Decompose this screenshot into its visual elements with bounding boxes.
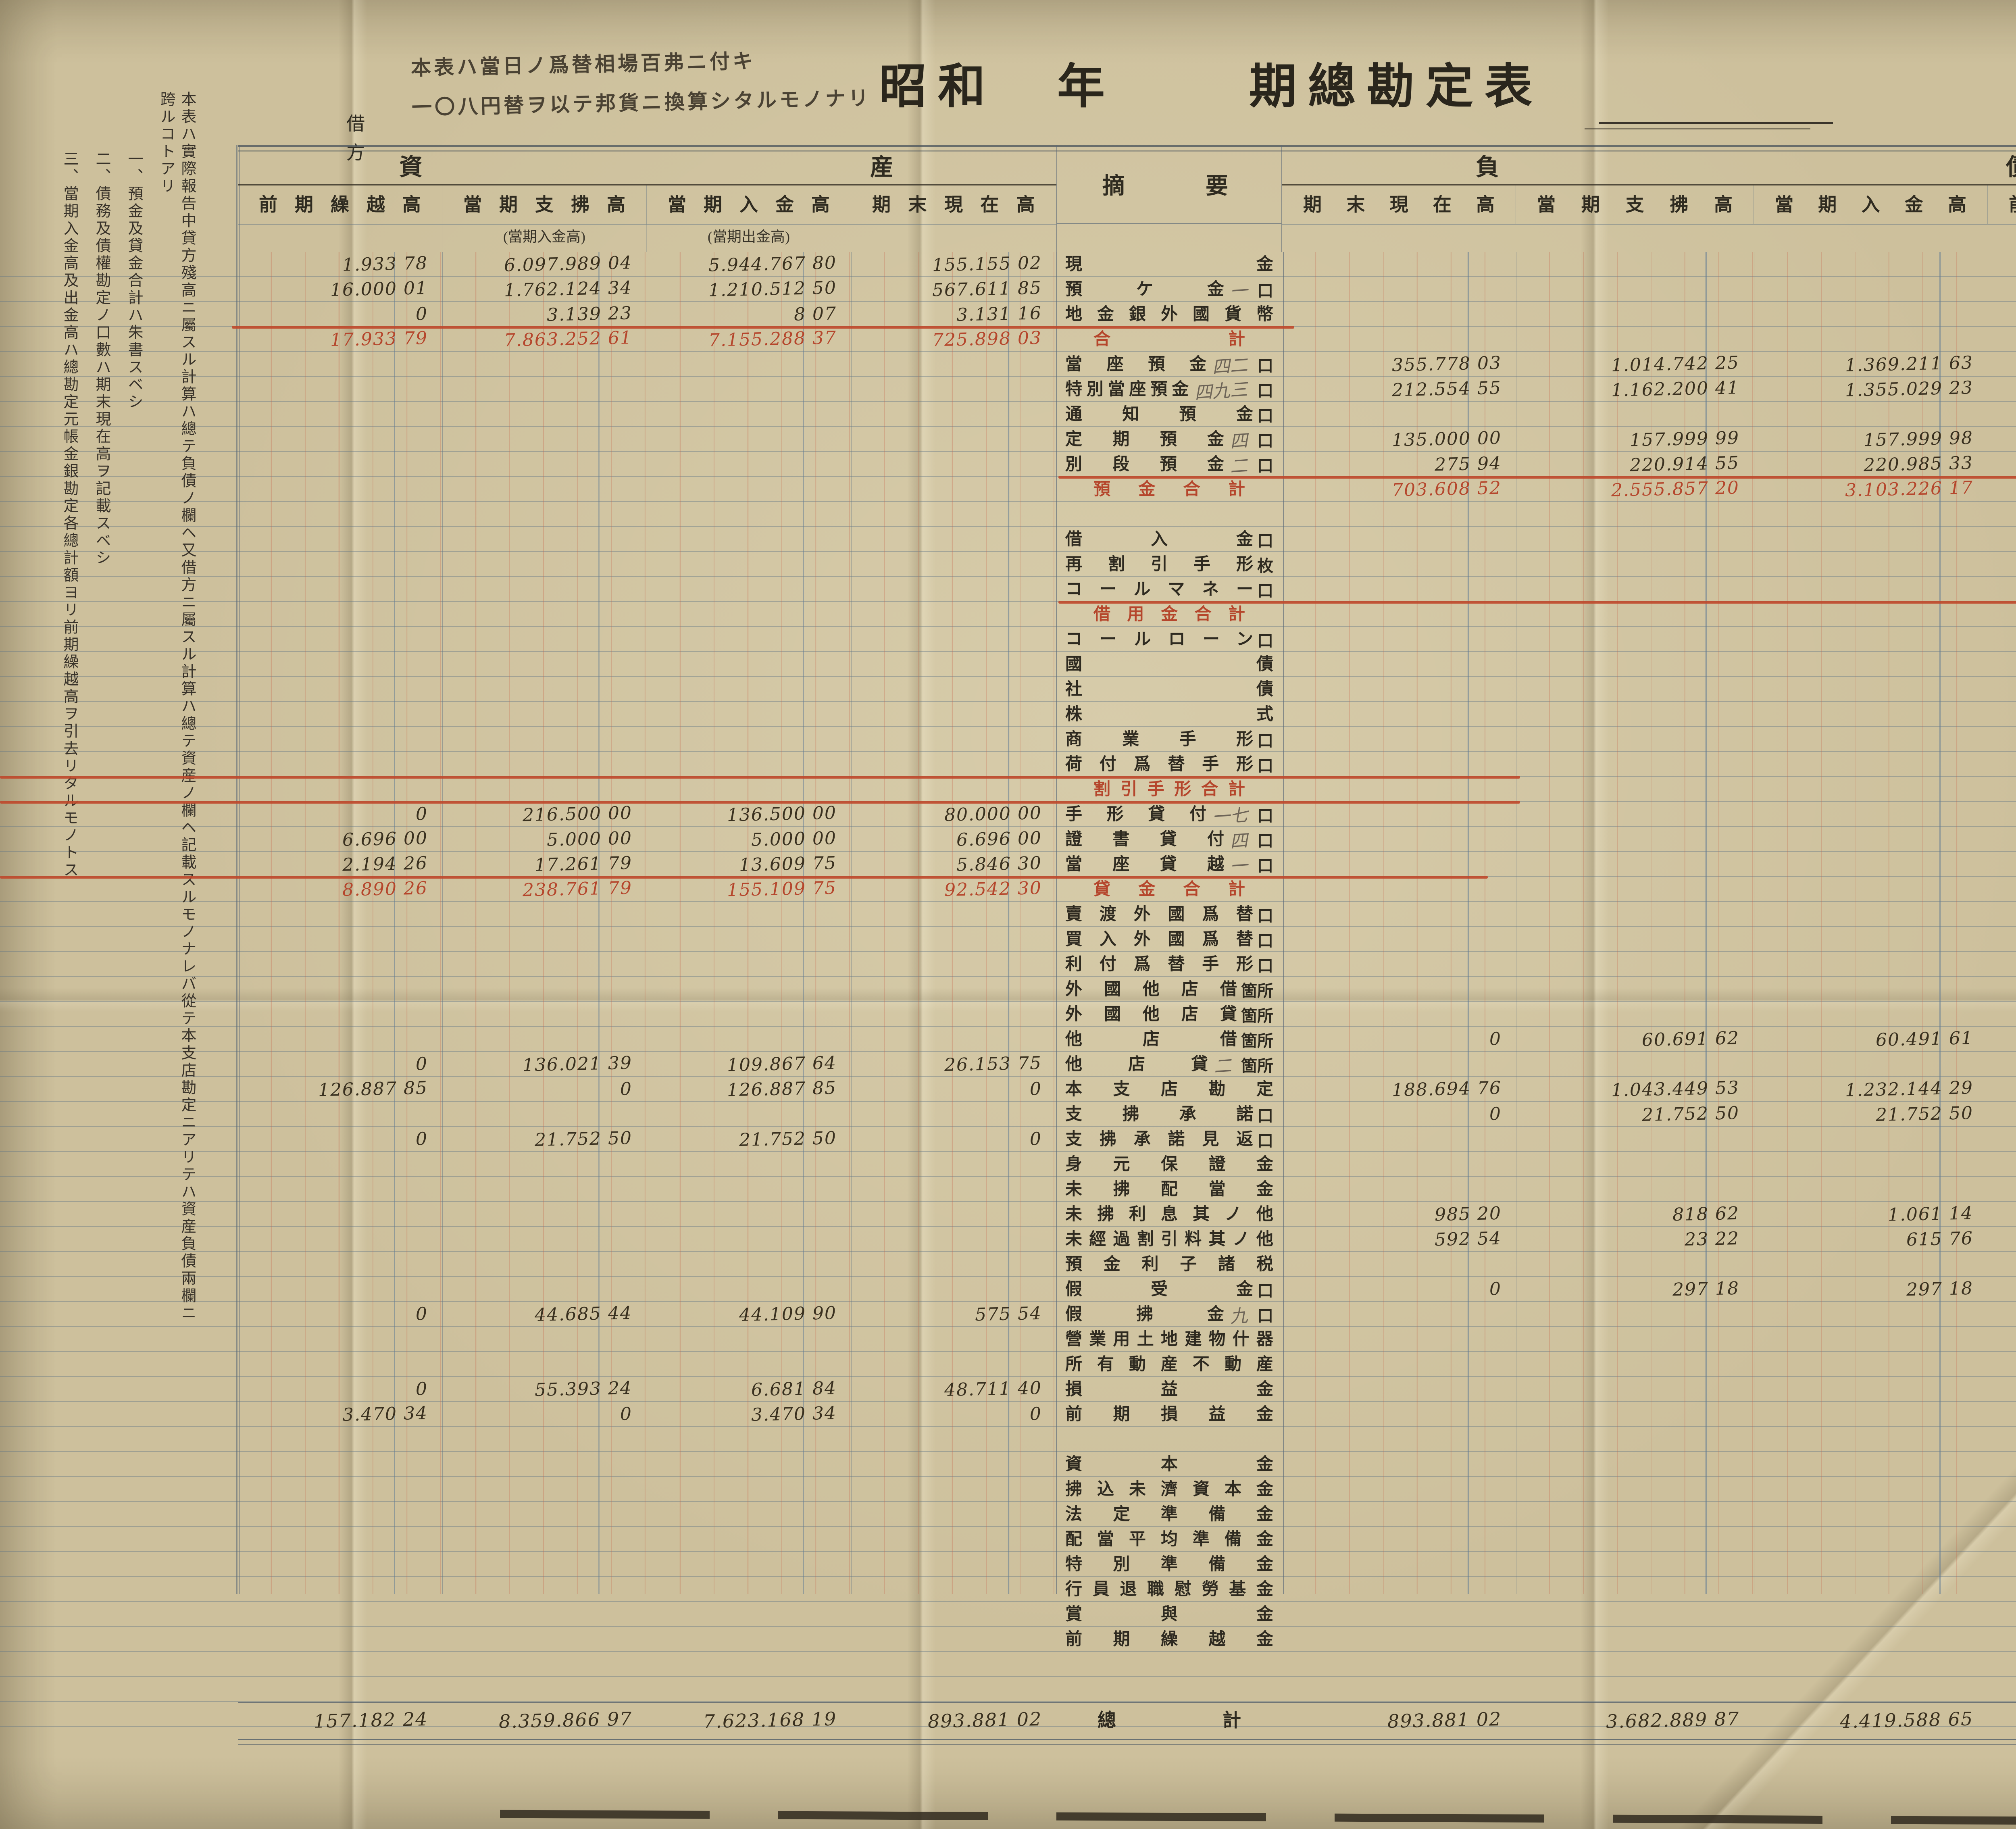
account-label: 別段預金: [1065, 452, 1224, 477]
liability-amount-cell: [1516, 1652, 1754, 1702]
liability-amount-cell: 200 01: [1988, 1027, 2016, 1052]
liability-amount-cell: [1988, 1127, 2016, 1152]
asset-amount-cell: 0: [851, 1077, 1056, 1102]
asset-amount-cell: [238, 1202, 442, 1227]
asset-amount-cell: [851, 1352, 1056, 1377]
liability-amount-cell: [1516, 977, 1754, 1002]
asset-amount-cell: [238, 977, 442, 1002]
liability-amount-cell: 893.881 02: [1282, 1702, 1516, 1739]
asset-amount-cell: 6.696 00: [238, 827, 442, 852]
liability-amount-cell: 0: [1988, 1077, 2016, 1102]
asset-amount-cell: 155.155 02: [851, 252, 1056, 277]
account-label-cell: 當座貸越一口: [1056, 852, 1282, 877]
liability-amount-cell: [1754, 1527, 1988, 1552]
account-label: 未經過割引料其ノ他: [1065, 1227, 1273, 1252]
account-unit: 箇所: [1241, 1053, 1273, 1076]
asset-amount-cell: [851, 1427, 1056, 1452]
liability-amount-cell: [1988, 1502, 2016, 1527]
asset-amount: 16.000 01: [330, 278, 428, 300]
asset-amount: 136.500 00: [727, 803, 837, 826]
liability-amount-cell: 0: [1988, 1227, 2016, 1252]
account-row: 通知預金口: [238, 402, 2016, 427]
account-label: 外國他店貸: [1065, 1002, 1237, 1027]
liability-amount-cell: 297 18: [1516, 1277, 1754, 1302]
asset-amount-cell: [238, 552, 442, 577]
liability-amount-cell: [1282, 502, 1516, 527]
liability-amount-cell: [1988, 1177, 2016, 1202]
liability-amount-cell: [1282, 252, 1516, 277]
liability-amount-cell: [1988, 877, 2016, 902]
liability-amount-cell: [1282, 1302, 1516, 1327]
asset-amount-cell: [442, 502, 647, 527]
account-label-cell: 證書貸付四口: [1056, 827, 1282, 852]
account-label-cell: 未拂利息其ノ他: [1056, 1202, 1282, 1227]
account-row: 外國他店借箇所: [238, 977, 2016, 1002]
asset-amount: 7.623.168 19: [703, 1708, 837, 1732]
account-label: 行員退職慰勞基金: [1065, 1577, 1273, 1602]
margin-notes: 本表ハ實際報告中貸方殘高ニ屬スル計算ハ總テ負債ノ欄ヘ又借方ニ屬スル計算ハ總テ資産…: [48, 91, 198, 1325]
liability-amount-cell: [1754, 1127, 1988, 1152]
account-row: 1.933 786.097.989 045.944.767 80155.155 …: [238, 252, 2016, 277]
account-label-cell: 支拂承諾見返口: [1056, 1127, 1282, 1152]
account-label-cell: 前期繰越金: [1056, 1627, 1282, 1652]
asset-amount-cell: 6.681 84: [647, 1377, 851, 1402]
account-label-cell: [1056, 1652, 1282, 1702]
account-row: 未拂利息其ノ他985 20818 621.061 14742 68: [238, 1202, 2016, 1227]
account-label: 通知預金: [1065, 402, 1253, 427]
account-label-cell: 借用金合計: [1056, 602, 1282, 627]
liability-amount-cell: 0: [1282, 1102, 1516, 1127]
liability-column-headers: 期末現在高當期支拂高當期入金高前期繰越高: [1282, 185, 2016, 224]
asset-amount-cell: 0: [851, 1402, 1056, 1427]
asset-amount-cell: [647, 577, 851, 602]
liability-amount-cell: 156.239 55: [1988, 477, 2016, 502]
account-label: 營業用土地建物什器: [1065, 1327, 1273, 1352]
account-unit: 箇所: [1241, 1028, 1273, 1051]
liability-amount-cell: [1988, 1052, 2016, 1077]
account-label-cell: 買入外國爲替口: [1056, 927, 1282, 952]
account-label: 再割引手形: [1065, 552, 1253, 577]
account-label-cell: 現金: [1056, 252, 1282, 277]
liability-amount: 1.043.449 53: [1611, 1077, 1740, 1101]
account-unit: 口: [1257, 828, 1273, 851]
asset-amount-cell: [647, 1002, 851, 1027]
account-label-cell: 當座預金四二口: [1056, 352, 1282, 377]
asset-subnotes: (當期入金高)(當期出金高): [238, 224, 1056, 252]
liability-amount-cell: [1754, 1502, 1988, 1527]
liability-amount-cell: [1516, 1127, 1754, 1152]
account-label: 定期預金: [1065, 427, 1224, 452]
liability-amount-cell: [1282, 327, 1516, 352]
asset-amount-cell: [238, 627, 442, 652]
account-count-pencil: 一七: [1211, 802, 1248, 827]
liability-amount-cell: [1516, 952, 1754, 977]
account-label: 資本金: [1065, 1452, 1273, 1477]
liability-amount-cell: [1754, 327, 1988, 352]
asset-amount-cell: [238, 427, 442, 452]
asset-amount-cell: 893.881 02: [851, 1702, 1056, 1739]
liability-amount-cell: [1988, 727, 2016, 752]
account-unit: 口: [1257, 278, 1273, 301]
asset-amount-cell: [647, 452, 851, 477]
asset-amount-cell: [851, 1252, 1056, 1277]
liability-amount-cell: [1516, 777, 1754, 802]
liability-amount-cell: [1988, 1302, 2016, 1327]
account-label: コールローン: [1065, 627, 1253, 652]
liability-amount: 23 22: [1685, 1228, 1740, 1250]
asset-amount-cell: 567.611 85: [851, 277, 1056, 302]
asset-amount-cell: [238, 1577, 442, 1602]
account-row: [238, 1652, 2016, 1702]
liability-amount-cell: 275 94: [1282, 452, 1516, 477]
liability-amount-cell: [1754, 1402, 1988, 1427]
asset-amount-cell: [442, 727, 647, 752]
account-label-cell: 外國他店貸箇所: [1056, 1002, 1282, 1027]
asset-amount-cell: 44.685 44: [442, 1302, 647, 1327]
account-row: 借入金口: [238, 527, 2016, 552]
asset-amount-cell: 7.155.288 37: [647, 327, 851, 352]
liability-amount-cell: [1988, 527, 2016, 552]
liability-amount-cell: [1516, 1627, 1754, 1652]
liability-amount-cell: [1516, 552, 1754, 577]
liability-amount-cell: [1516, 702, 1754, 727]
liability-amount-cell: 355.778 03: [1282, 352, 1516, 377]
asset-amount-cell: [442, 652, 647, 677]
liability-amount: 1.355.029 23: [1845, 377, 1974, 401]
liability-amount-cell: 60.491 61: [1754, 1027, 1988, 1052]
account-label-cell: 配當平均準備金: [1056, 1527, 1282, 1552]
liability-amount: 893.881 02: [1387, 1708, 1502, 1732]
liability-amount: 60.491 61: [1876, 1028, 1974, 1050]
account-unit: 口: [1257, 803, 1273, 826]
liability-amount: 0: [1489, 1104, 1502, 1125]
asset-amount-cell: [647, 952, 851, 977]
asset-amount-cell: 26.153 75: [851, 1052, 1056, 1077]
account-unit: 箇所: [1241, 1003, 1273, 1026]
account-row: 定期預金四口135.000 00157.999 99157.999 98135.…: [238, 427, 2016, 452]
liability-amount-cell: [1988, 652, 2016, 677]
account-label-cell: 損益金: [1056, 1377, 1282, 1402]
liability-amount-cell: [1282, 1377, 1516, 1402]
account-label-cell: 特別準備金: [1056, 1552, 1282, 1577]
asset-amount-cell: [647, 1577, 851, 1602]
asset-amount-cell: 126.887 85: [647, 1077, 851, 1102]
liability-amount-cell: [1516, 1502, 1754, 1527]
account-label: 商業手形: [1065, 727, 1253, 752]
account-row: 外國他店貸箇所: [238, 1002, 2016, 1027]
liability-amount-cell: [1516, 252, 1754, 277]
account-label: 未拂配當金: [1065, 1177, 1273, 1202]
margin-note-3: 三、當期入金高及出金高ハ總勘定元帳金銀勘定各總計額ヨリ前期繰越高ヲ引去リタルモノ…: [59, 91, 80, 1325]
asset-amount-cell: 6.097.989 04: [442, 252, 647, 277]
asset-amount: 5.846 30: [956, 853, 1042, 875]
liability-amount-cell: [1282, 1502, 1516, 1527]
account-row: 17.933 797.863.252 617.155.288 37725.898…: [238, 327, 2016, 352]
asset-amount-cell: [238, 402, 442, 427]
asset-amount: 0: [415, 1054, 428, 1075]
title-underline: [1585, 128, 1810, 129]
liability-amount-cell: [1516, 652, 1754, 677]
liability-amount-cell: [1754, 1152, 1988, 1177]
liability-amount-cell: [1516, 1302, 1754, 1327]
asset-amount-cell: [851, 752, 1056, 777]
account-label: 當座預金: [1065, 352, 1206, 377]
account-label: 賣渡外國爲替: [1065, 902, 1253, 927]
asset-amount-cell: [647, 727, 851, 752]
account-row: 再割引手形枚: [238, 552, 2016, 577]
account-unit: 口: [1257, 628, 1273, 651]
asset-amount-cell: [647, 477, 851, 502]
liability-amount-cell: [1754, 552, 1988, 577]
liability-amount-cell: [1988, 1402, 2016, 1427]
asset-column-header: 期末現在高: [851, 185, 1056, 225]
asset-amount-cell: [442, 1652, 647, 1702]
asset-amount-cell: 5.000 00: [442, 827, 647, 852]
liability-amount-cell: [1516, 277, 1754, 302]
liability-amount-cell: [1754, 1652, 1988, 1702]
liability-amount-cell: [1754, 677, 1988, 702]
asset-amount: 126.887 85: [727, 1078, 837, 1101]
asset-column-header: 前期繰越高: [238, 185, 442, 225]
account-row: 法定準備金: [238, 1502, 2016, 1527]
asset-amount-cell: 1.933 78: [238, 252, 442, 277]
account-unit: 口: [1257, 1103, 1273, 1126]
asset-amount-cell: [851, 1202, 1056, 1227]
liability-amount-cell: [1754, 802, 1988, 827]
asset-amount-cell: [442, 552, 647, 577]
asset-amount-cell: [442, 1452, 647, 1477]
asset-amount-cell: [647, 777, 851, 802]
liability-amount-cell: [1282, 1427, 1516, 1452]
account-row: 荷付爲替手形口: [238, 752, 2016, 777]
liability-amount-cell: [1282, 1477, 1516, 1502]
account-row: 特別當座預金四九三口212.554 551.162.200 411.355.02…: [238, 377, 2016, 402]
asset-amount-cell: 109.867 64: [647, 1052, 851, 1077]
asset-amount-cell: [851, 1002, 1056, 1027]
asset-amount-cell: 136.021 39: [442, 1052, 647, 1077]
asset-amount-cell: [238, 602, 442, 627]
liability-amount-cell: [1754, 1627, 1988, 1652]
liability-amount: 0: [1489, 1279, 1502, 1300]
liability-amount: 297 18: [1906, 1278, 1974, 1300]
liability-amount-cell: [1754, 1327, 1988, 1352]
account-row: [238, 502, 2016, 527]
asset-amount-cell: 0: [238, 1052, 442, 1077]
asset-amount-cell: [851, 1227, 1056, 1252]
liability-amount-cell: [1754, 877, 1988, 902]
liability-amount: 3.103.226 17: [1845, 477, 1974, 501]
account-row: 0136.021 39109.867 6426.153 75他店貸二箇所: [238, 1052, 2016, 1077]
liabilities-group-header: 負債: [1282, 145, 2016, 185]
asset-column-header: 當期入金高: [647, 185, 851, 225]
asset-amount-cell: 21.752 50: [442, 1127, 647, 1152]
liability-amount: 135.000 00: [1392, 428, 1502, 451]
account-count-pencil: 九: [1229, 1302, 1248, 1327]
asset-amount-cell: 5.000 00: [647, 827, 851, 852]
asset-amount-cell: [647, 702, 851, 727]
liability-amount-cell: [1988, 677, 2016, 702]
account-row: コールマネー口: [238, 577, 2016, 602]
asset-amount-cell: [851, 652, 1056, 677]
asset-amount-cell: [442, 352, 647, 377]
account-row: 前期繰越金: [238, 1627, 2016, 1652]
account-count-pencil: 二: [1229, 452, 1248, 477]
account-label: 手形貸付: [1065, 802, 1206, 827]
liability-amount-cell: [1282, 1452, 1516, 1477]
asset-amount-cell: [442, 1102, 647, 1127]
asset-amount-cell: [238, 1552, 442, 1577]
liability-amount-cell: [1516, 602, 1754, 627]
liability-amount-cell: [1754, 602, 1988, 627]
asset-amount-cell: [442, 1502, 647, 1527]
asset-amount-cell: [238, 752, 442, 777]
liability-amount-cell: [1282, 302, 1516, 327]
margin-note-2: 二、債務及債權勘定ノ口數ハ期末現在高ヲ記載スベシ: [91, 91, 112, 1325]
liability-amount-cell: [1988, 1627, 2016, 1652]
table-left-border: [236, 145, 237, 1594]
asset-amount-cell: [647, 1602, 851, 1627]
account-label-cell: 假拂金九口: [1056, 1302, 1282, 1327]
asset-amount-cell: [851, 1277, 1056, 1302]
asset-amount-cell: [238, 1452, 442, 1477]
asset-amount: 3.131 16: [956, 303, 1042, 325]
asset-amount-cell: 92.542 30: [851, 877, 1056, 902]
liability-amount-cell: [1754, 827, 1988, 852]
asset-amount-cell: [851, 552, 1056, 577]
liability-column-header: 當期入金高: [1754, 185, 1988, 225]
liability-amount-cell: [1988, 552, 2016, 577]
account-label-cell: 總計: [1056, 1702, 1282, 1739]
account-label: 地金銀外國貨幣: [1065, 302, 1273, 327]
asset-amount-cell: [442, 952, 647, 977]
asset-amount-cell: [442, 577, 647, 602]
liability-amount-cell: [1282, 1052, 1516, 1077]
account-label: 證書貸付: [1065, 827, 1224, 852]
account-row: 配當平均準備金: [238, 1527, 2016, 1552]
liability-amount-cell: [1988, 1652, 2016, 1702]
asset-amount-cell: [442, 527, 647, 552]
account-unit: 口: [1257, 1278, 1273, 1301]
liability-amount-cell: 0: [1282, 1277, 1516, 1302]
asset-amount: 109.867 64: [727, 1053, 837, 1076]
liability-amount-cell: [1282, 1002, 1516, 1027]
asset-amount-cell: [851, 1627, 1056, 1652]
liability-amount-cell: [1516, 1402, 1754, 1427]
liability-amount-cell: 19.725 73: [1988, 377, 2016, 402]
asset-amount-cell: [442, 702, 647, 727]
asset-subnote: (當期出金高): [647, 224, 851, 252]
liability-amount-cell: [1988, 1427, 2016, 1452]
asset-amount: 155.155 02: [932, 253, 1042, 276]
asset-amount-cell: 136.500 00: [647, 802, 851, 827]
liability-amount-cell: [1988, 1327, 2016, 1352]
account-row: 8.890 26238.761 79155.109 7592.542 30貸金合…: [238, 877, 2016, 902]
asset-amount: 44.685 44: [535, 1303, 633, 1325]
account-unit: 枚: [1257, 553, 1273, 576]
asset-amount-cell: [647, 1627, 851, 1652]
liability-amount-cell: [1754, 302, 1988, 327]
account-count-pencil: 二: [1213, 1052, 1232, 1077]
liability-amount: 355.778 03: [1392, 353, 1502, 376]
asset-amount-cell: 21.752 50: [647, 1127, 851, 1152]
liability-amount-cell: 1.308 65: [1988, 352, 2016, 377]
asset-amount-cell: 216.500 00: [442, 802, 647, 827]
asset-amount-cell: [851, 1602, 1056, 1627]
account-unit: 口: [1257, 728, 1273, 751]
grand-total-top-border: [238, 1702, 2016, 1703]
account-row: 6.696 005.000 005.000 006.696 00證書貸付四口: [238, 827, 2016, 852]
account-row: 03.139 238 073.131 16地金銀外國貨幣: [238, 302, 2016, 327]
asset-amount: 1.762.124 34: [504, 277, 633, 301]
liability-amount-cell: [1754, 1177, 1988, 1202]
liability-amount-cell: [1988, 902, 2016, 927]
account-label-cell: 營業用土地建物什器: [1056, 1327, 1282, 1352]
account-table: 資産摘要負債前期繰越高當期支拂高當期入金高期末現在高期末現在高當期支拂高當期入金…: [238, 145, 2016, 1594]
liability-amount-cell: [1754, 402, 1988, 427]
asset-amount-cell: [647, 1502, 851, 1527]
liability-amount: 297 18: [1672, 1278, 1740, 1300]
account-row: 16.000 011.762.124 341.210.512 50567.611…: [238, 277, 2016, 302]
account-label-cell: 前期損益金: [1056, 1402, 1282, 1427]
asset-amount-cell: 44.109 90: [647, 1302, 851, 1327]
red-total-rule: [1058, 476, 2016, 479]
red-total-rule: [232, 326, 1294, 329]
asset-amount-cell: [647, 1277, 851, 1302]
account-label: 荷付爲替手形: [1065, 752, 1253, 777]
liability-amount-cell: [1988, 277, 2016, 302]
account-unit: 口: [1257, 428, 1273, 451]
account-unit: 口: [1257, 578, 1273, 601]
account-label: 損益金: [1065, 1377, 1273, 1402]
account-label: 本支店勘定: [1065, 1077, 1273, 1102]
account-label: 賞與金: [1065, 1602, 1273, 1627]
account-unit: 口: [1257, 378, 1273, 401]
account-row: 預金合計703.608 522.555.857 203.103.226 1715…: [238, 477, 2016, 502]
asset-amount-cell: 0: [442, 1077, 647, 1102]
asset-amount-cell: [238, 1102, 442, 1127]
asset-amount-cell: [647, 402, 851, 427]
asset-amount-cell: [442, 1252, 647, 1277]
asset-amount: 2.194 26: [342, 853, 428, 875]
account-count-pencil: 四二: [1211, 352, 1248, 377]
asset-amount-cell: [647, 502, 851, 527]
account-unit: 口: [1257, 903, 1273, 926]
account-row: 所有動産不動産: [238, 1352, 2016, 1377]
asset-amount-cell: [647, 1027, 851, 1052]
account-label-cell: 合計: [1056, 327, 1282, 352]
liability-amount-cell: 135.000 00: [1282, 427, 1516, 452]
account-label: 合計: [1065, 327, 1273, 352]
asset-amount-cell: [238, 1627, 442, 1652]
asset-amount-cell: [851, 402, 1056, 427]
account-label-cell: 手形貸付一七口: [1056, 802, 1282, 827]
liability-amount-cell: [1754, 1002, 1988, 1027]
liability-amount-cell: [1988, 1377, 2016, 1402]
liability-amount-cell: [1988, 977, 2016, 1002]
account-row: 未經過割引料其ノ他592 5423 22615 760: [238, 1227, 2016, 1252]
asset-amount-cell: [647, 1152, 851, 1177]
asset-amount: 3.139 23: [547, 303, 633, 325]
account-label: 株式: [1065, 702, 1273, 727]
asset-amount: 55.393 24: [535, 1378, 633, 1400]
account-label-cell: 預ケ金一口: [1056, 277, 1282, 302]
asset-amount: 0: [620, 1404, 632, 1425]
liability-amount-cell: [1282, 1252, 1516, 1277]
account-label: コールマネー: [1065, 577, 1253, 602]
account-label-cell: 行員退職慰勞基金: [1056, 1577, 1282, 1602]
liability-amount: 212.554 55: [1392, 378, 1502, 401]
liability-amount-cell: [1754, 702, 1988, 727]
